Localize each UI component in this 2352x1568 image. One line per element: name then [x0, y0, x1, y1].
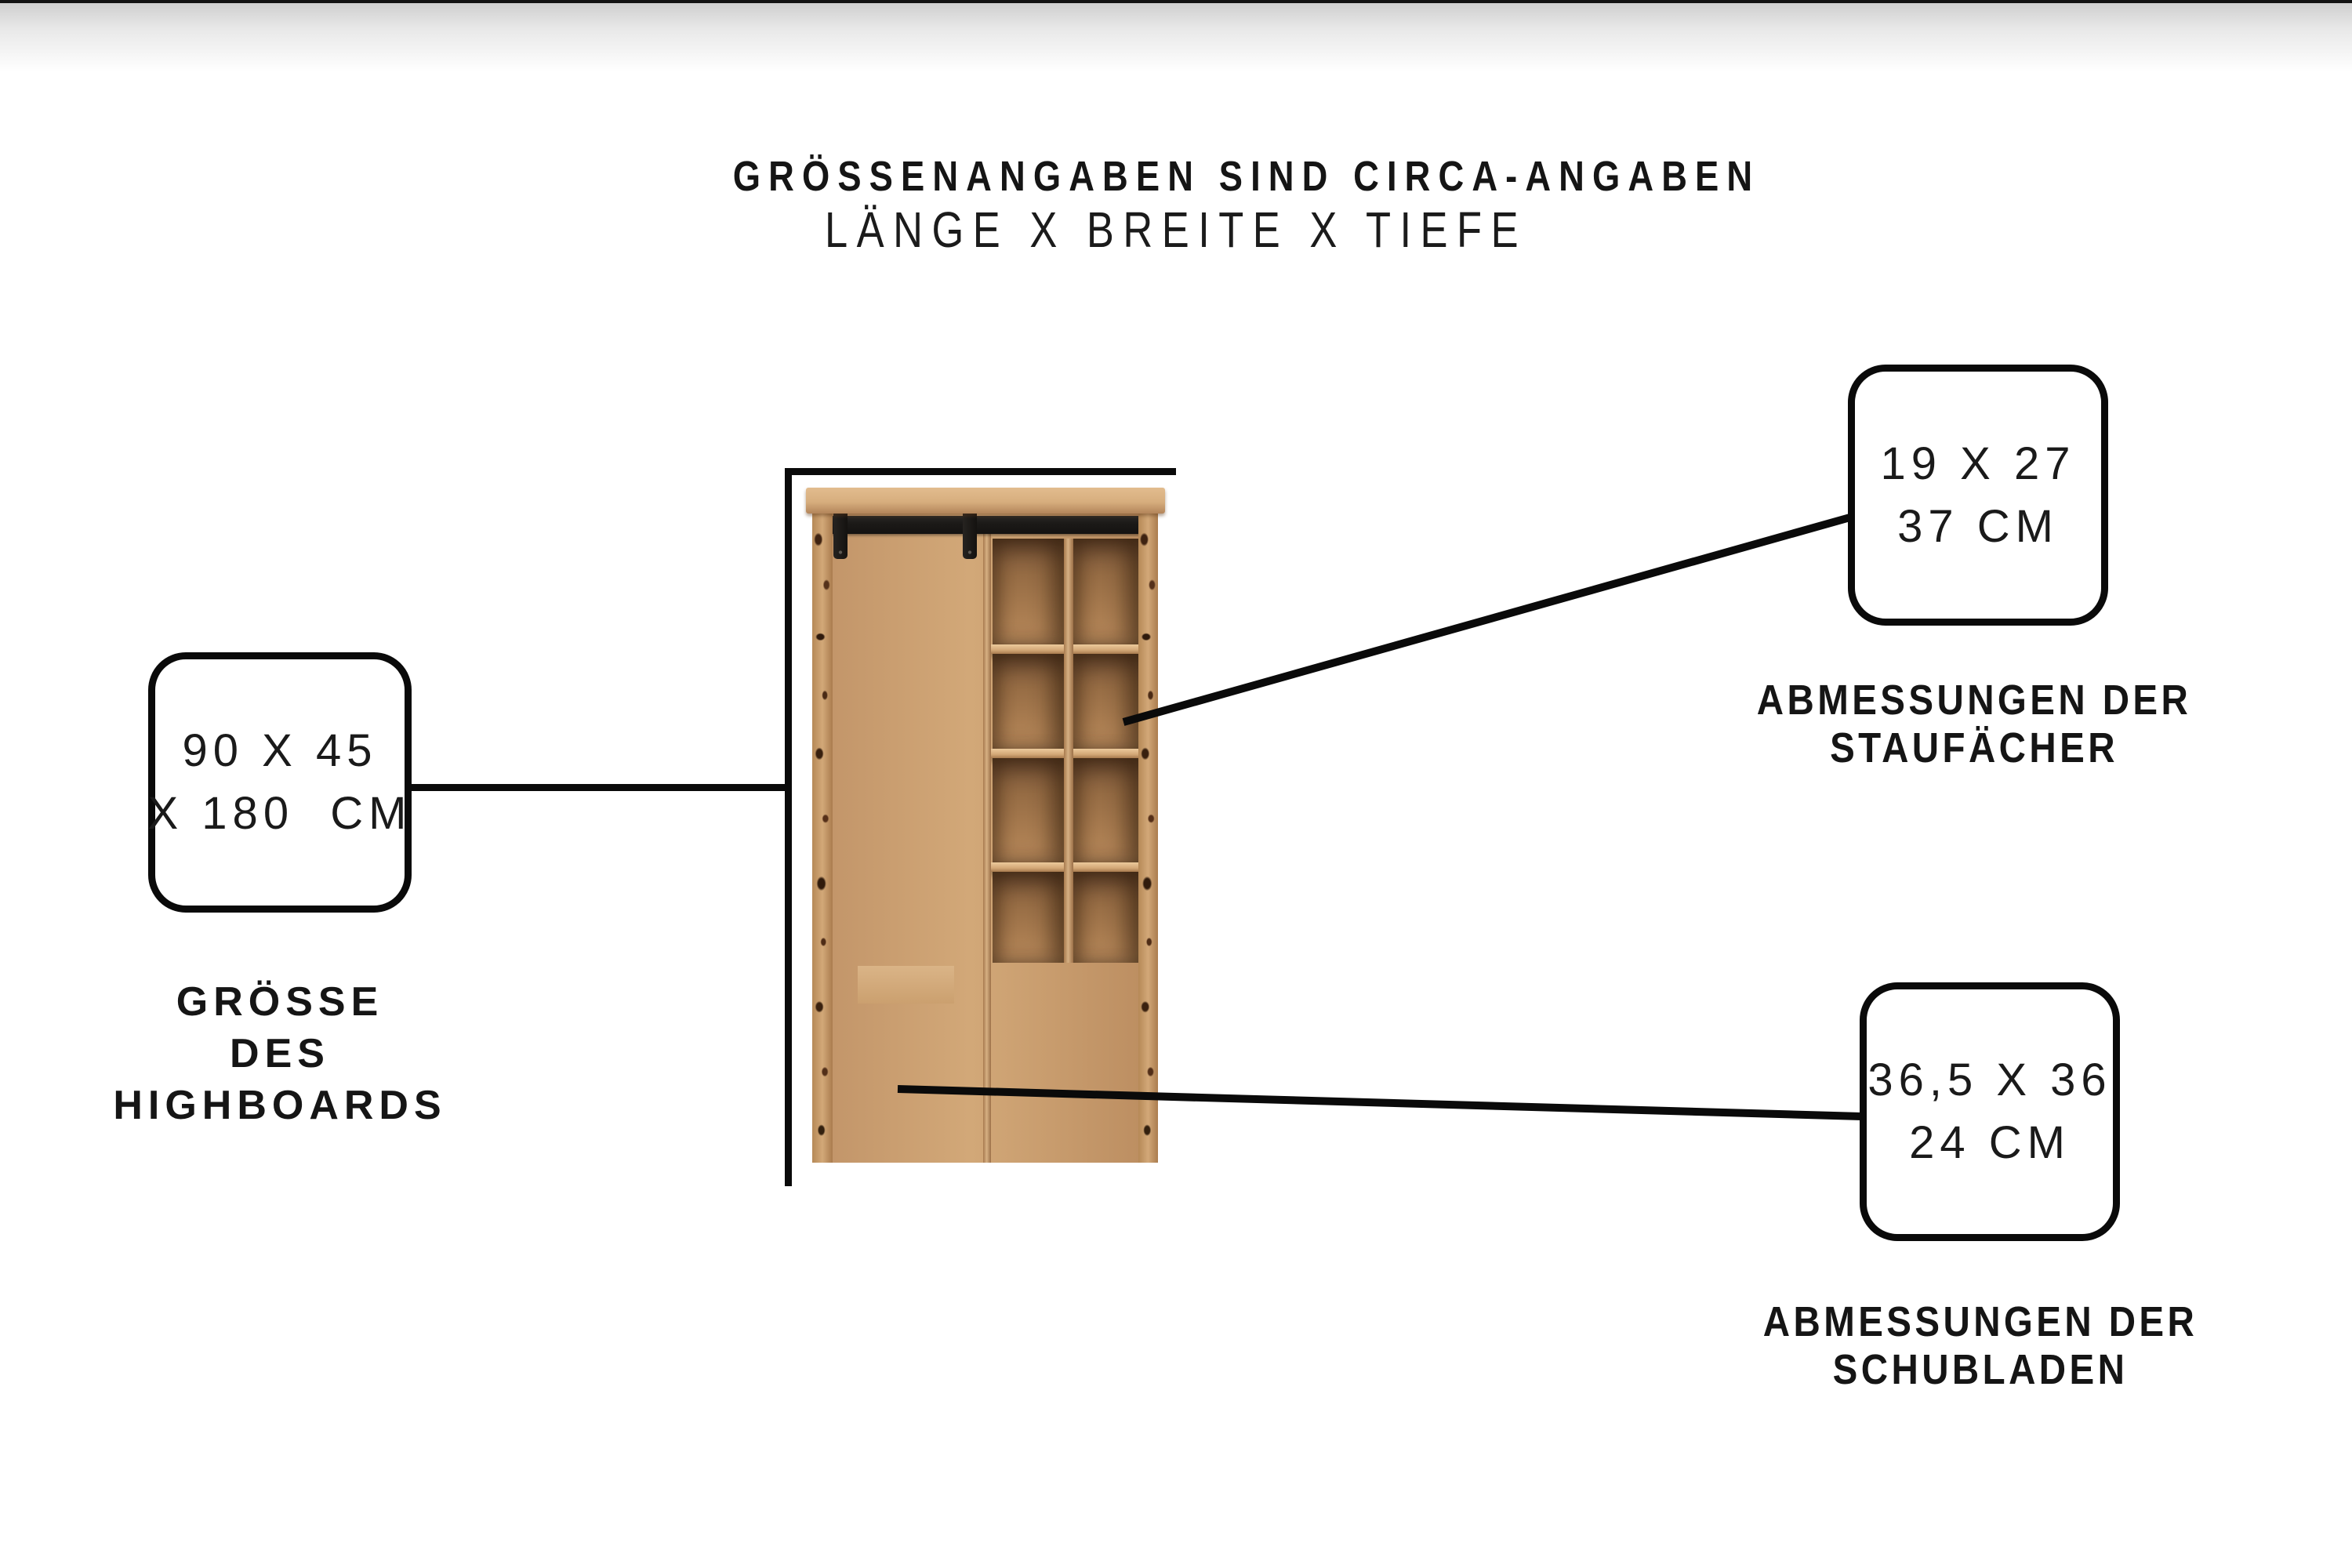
compartments-label-line2: STAUFÄCHER — [1830, 724, 2118, 772]
shelf-behind-glass — [858, 955, 954, 966]
highboard-size-line2: X 180 CM — [148, 782, 412, 845]
cabinet-cornice — [806, 488, 1165, 514]
connector-compartments — [1123, 514, 1852, 726]
dimension-line-left — [785, 468, 792, 1186]
shelf-behind-glass — [858, 822, 954, 833]
door-lower-panel — [858, 1004, 954, 1121]
compartments-label-line1: ABMESSUNGEN DER — [1757, 676, 2191, 724]
highboard-photo — [806, 488, 1167, 1211]
cabinet-foot — [817, 1185, 848, 1211]
wine-rack-top-board — [986, 963, 1138, 978]
compartment-cell — [1073, 758, 1138, 862]
compartments-size-line2: 37 CM — [1897, 495, 2059, 558]
compartment-divider — [1064, 539, 1073, 963]
header-divider-shadow — [0, 0, 2352, 72]
connector-highboard — [410, 784, 789, 791]
compartment-cell — [1073, 539, 1138, 644]
highboard-label-line2: DES — [230, 1030, 330, 1077]
wine-rack — [986, 978, 1138, 1163]
compartment-cell — [1073, 654, 1138, 749]
compartment-cell — [993, 758, 1064, 862]
highboard-size-line1: 90 X 45 — [183, 720, 378, 782]
barn-door-rail — [825, 516, 1142, 534]
callout-box-compartments: 19 X 27 37 CM — [1848, 365, 2108, 626]
highboard-label-line1: GRÖSSE — [176, 978, 384, 1025]
dimension-line-top — [785, 468, 1176, 475]
compartment-cell — [993, 539, 1064, 644]
shelf-behind-glass — [858, 674, 954, 685]
drawers-label-line1: ABMESSUNGEN DER — [1763, 1298, 2198, 1346]
compartments-size-line1: 19 X 27 — [1881, 433, 2076, 495]
compartment-cell — [993, 654, 1064, 749]
drawers-size-line1: 36,5 X 36 — [1867, 1049, 2111, 1112]
callout-box-drawers: 36,5 X 36 24 CM — [1860, 982, 2120, 1241]
cabinet-plinth — [811, 1163, 1154, 1185]
door-glass-panel — [858, 563, 954, 966]
header-subtitle: LÄNGE X BREITE X TIEFE — [825, 201, 1527, 259]
highboard-label-line3: HIGHBOARDS — [113, 1082, 446, 1129]
door-bottom-rail — [858, 1121, 954, 1159]
callout-box-highboard: 90 X 45 X 180 CM — [148, 652, 412, 913]
drawers-label-line2: SCHUBLADEN — [1833, 1345, 2129, 1394]
left-live-edge-stile — [812, 514, 833, 1163]
header-title: GRÖSSENANGABEN SIND CIRCA-ANGABEN — [733, 152, 1760, 201]
sliding-door — [825, 516, 983, 1159]
cabinet-foot — [1119, 1185, 1150, 1211]
compartment-cell — [1073, 872, 1138, 963]
door-mid-rail — [858, 966, 954, 1004]
compartment-cell — [993, 872, 1064, 963]
right-live-edge-stile — [1138, 514, 1158, 1163]
drawers-size-line2: 24 CM — [1909, 1112, 2071, 1174]
